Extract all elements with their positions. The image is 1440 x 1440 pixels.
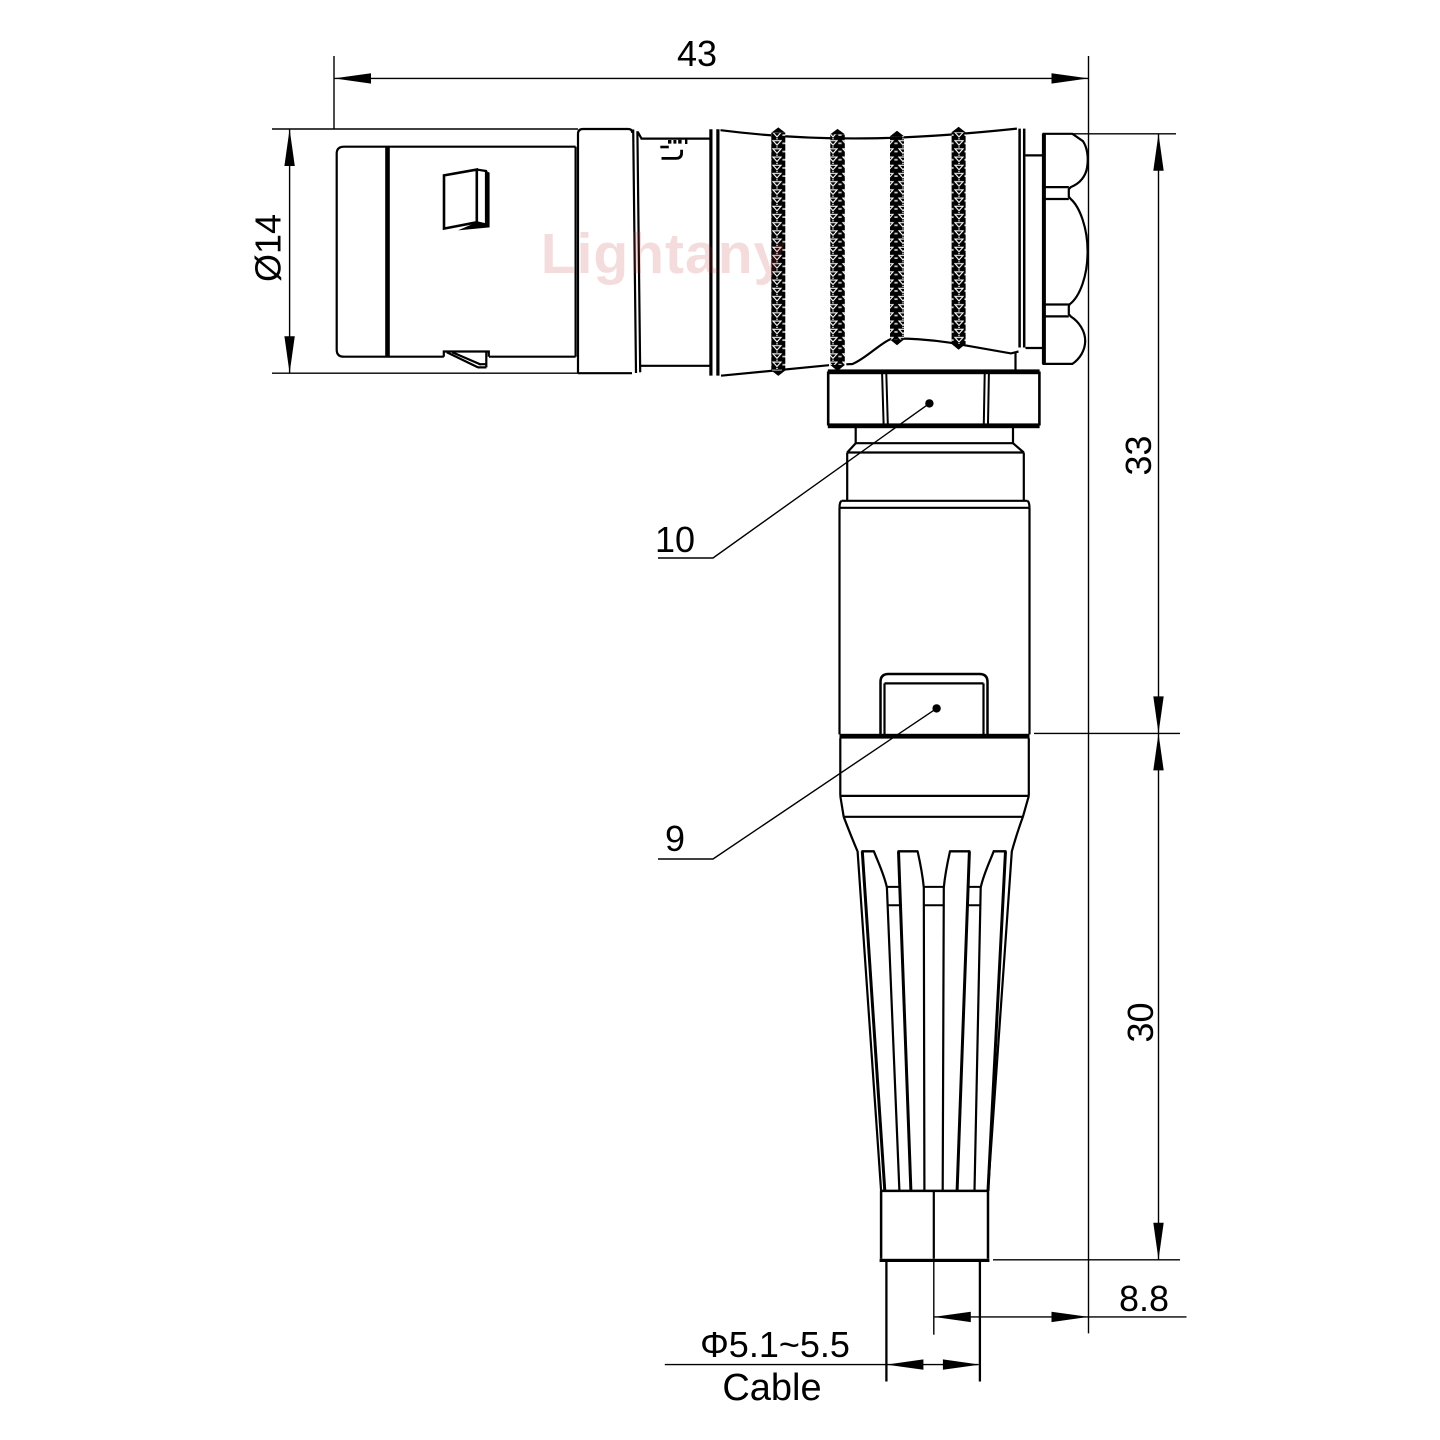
svg-text:10: 10 (655, 519, 695, 560)
svg-text:33: 33 (1118, 435, 1159, 475)
svg-text:Φ5.1~5.5: Φ5.1~5.5 (700, 1324, 850, 1365)
svg-text:Lightany: Lightany (541, 222, 787, 286)
svg-text:8.8: 8.8 (1119, 1278, 1169, 1319)
svg-text:9: 9 (665, 818, 685, 859)
svg-text:43: 43 (677, 33, 717, 74)
svg-text:Ø14: Ø14 (248, 214, 289, 282)
svg-text:30: 30 (1120, 1002, 1161, 1042)
svg-text:Cable: Cable (722, 1367, 821, 1409)
